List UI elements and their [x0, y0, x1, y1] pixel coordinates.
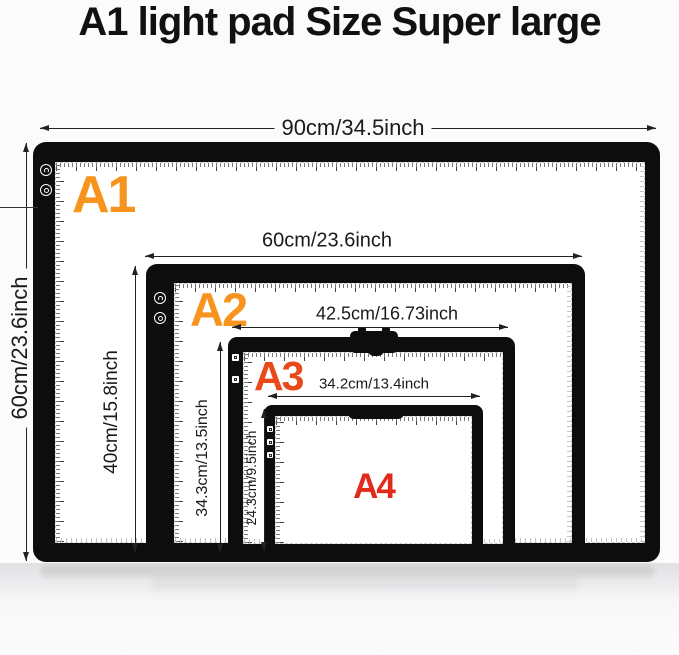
dim-label-a4-height: 24.3cm/9.5inch [243, 431, 259, 526]
dim-line-a2-height [132, 266, 139, 552]
dim-label-a2-height: 40cm/15.8inch [101, 350, 123, 474]
brightness-icon [154, 312, 166, 324]
brightness-icon [40, 184, 52, 196]
paper-clip-icon [348, 405, 404, 419]
light-pad-size-diagram: A1 light pad Size Super large A1 A2 [0, 0, 679, 655]
ruler-icon [276, 417, 284, 543]
power-icon [154, 292, 166, 304]
ruler-icon [639, 163, 644, 542]
dim-line-a2-width [145, 253, 582, 260]
dim-label-a3-height: 34.3cm/13.5inch [194, 399, 212, 516]
pad-a4-surface: A4 [275, 416, 472, 544]
dim-tick-a1-height [0, 207, 38, 208]
ruler-icon [566, 284, 571, 542]
paper-clip-icon [350, 331, 398, 353]
power-icon [40, 164, 52, 176]
ruler-icon [175, 284, 183, 542]
dim-line-a4-height [261, 409, 268, 551]
touch-key-icon [232, 354, 239, 361]
page-title: A1 light pad Size Super large [0, 0, 679, 45]
pad-a4-label: A4 [353, 469, 394, 504]
ruler-icon [56, 163, 64, 542]
dim-label-a3-width: 42.5cm/16.73inch [316, 304, 458, 325]
dim-line-a4-width [268, 393, 480, 400]
dim-label-a1-width: 90cm/34.5inch [274, 115, 431, 141]
floor-reflection [0, 563, 679, 655]
pad-a3-label: A3 [254, 356, 302, 397]
light-pad-a4: A4 [264, 405, 483, 556]
dim-label-a1-height: 60cm/23.6inch [7, 268, 33, 427]
dim-label-a2-width: 60cm/23.6inch [262, 230, 392, 253]
dim-line-a3-width [232, 324, 508, 331]
pad-a1-label: A1 [72, 169, 134, 221]
touch-key-icon [232, 376, 239, 383]
dim-label-a4-width: 34.2cm/13.4inch [319, 376, 429, 393]
dim-line-a3-height [217, 342, 224, 553]
ruler-icon [56, 163, 644, 171]
